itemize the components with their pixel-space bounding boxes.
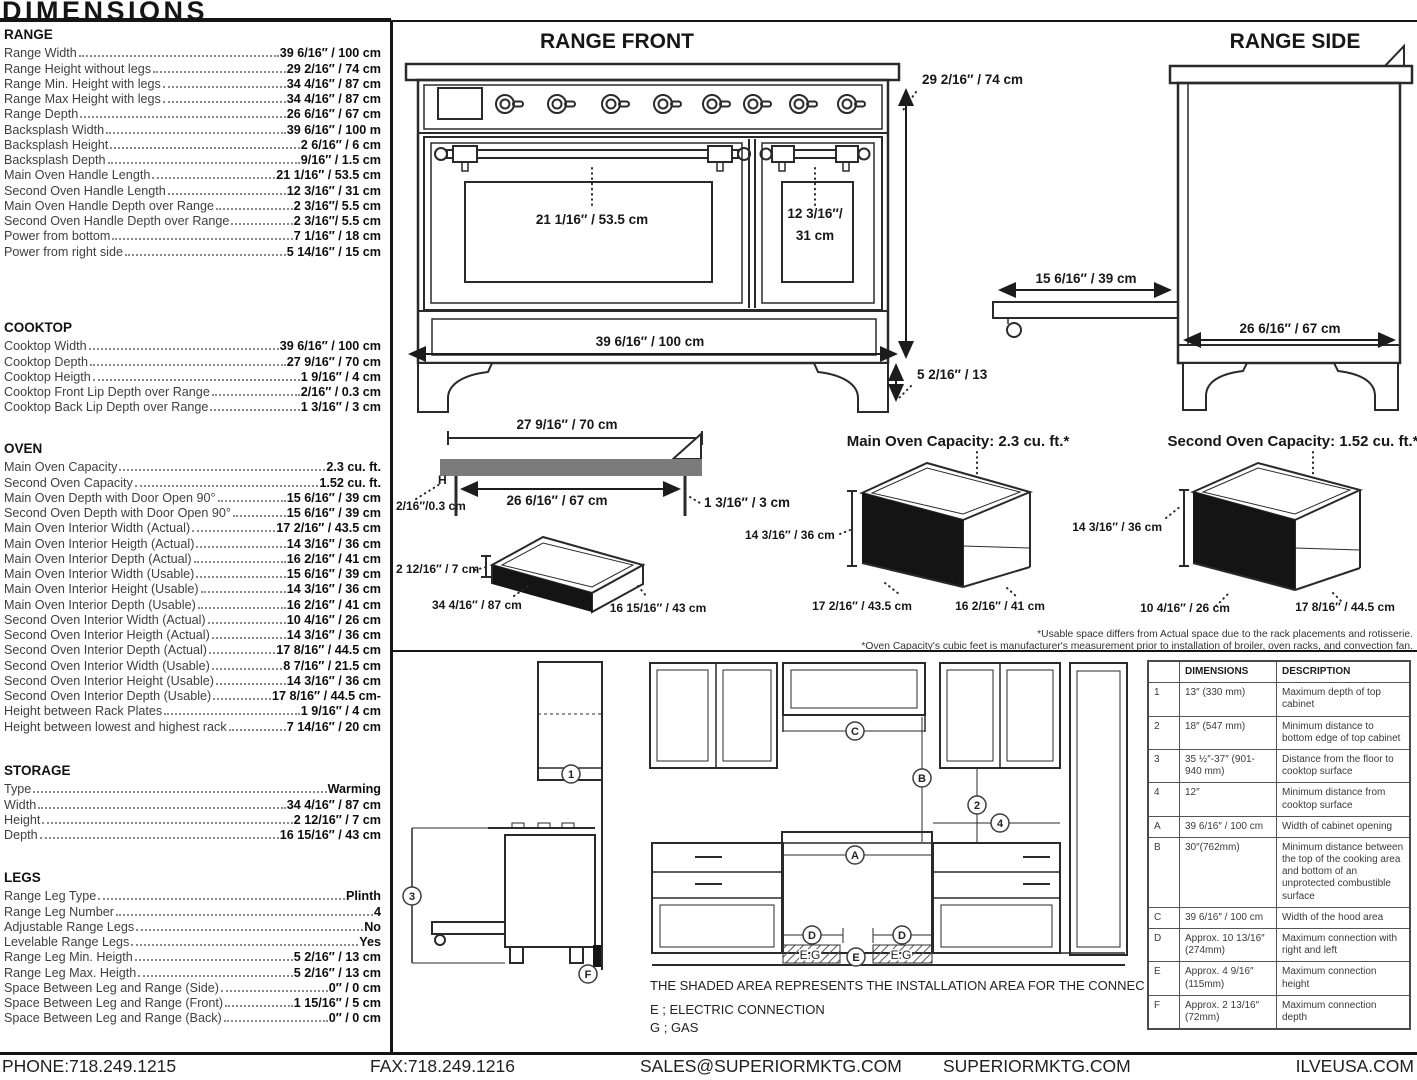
dotted-leader: [196, 546, 285, 548]
range-side-diagram: RANGE SIDE 15 6/16″ / 39 cm 26 6/16″ / 6…: [993, 30, 1412, 410]
spec-label: Main Oven Interior Depth (Actual): [4, 552, 192, 566]
spec-value: 2 3/16″/ 5.5 cm: [294, 214, 381, 228]
spec-label: Type: [4, 782, 31, 796]
spec-row: Second Oven Interior Depth (Actual) 17 8…: [4, 642, 381, 657]
dotted-leader: [152, 177, 275, 179]
spec-row: Range Leg Min. Heigth 5 2/16″ / 13 cm: [4, 949, 381, 964]
spec-value: 2 3/16″/ 5.5 cm: [294, 199, 381, 213]
spec-row: Range Depth 26 6/16″ / 67 cm: [4, 106, 381, 121]
connection-table: DIMENSIONS DESCRIPTION 1 13″ (330 mm) Ma…: [1147, 660, 1411, 1030]
svg-text:D: D: [808, 930, 816, 942]
spec-row: Height between Rack Plates 1 9/16″ / 4 c…: [4, 703, 381, 718]
row-description: Distance from the floor to cooktop surfa…: [1277, 749, 1411, 782]
main-oven-capacity-title: Main Oven Capacity: 2.3 cu. ft.*: [847, 433, 1070, 450]
spec-value: 2.3 cu. ft.: [326, 460, 381, 474]
row-dimension: Approx. 2 13/16″ (72mm): [1180, 995, 1277, 1029]
dotted-leader: [194, 561, 286, 563]
spec-row: Range Leg Type Plinth: [4, 888, 381, 903]
dotted-leader: [164, 713, 300, 715]
row-description: Width of the hood area: [1277, 907, 1411, 928]
leg-height-dim: 5 2/16″ / 13: [917, 367, 988, 382]
spec-label: Range Min. Height with legs: [4, 77, 161, 91]
spec-value: 17 2/16″ / 43.5 cm: [276, 521, 381, 535]
spec-row: Space Between Leg and Range (Front) 1 15…: [4, 995, 381, 1010]
wall-cabinet: [538, 662, 602, 780]
marker-f: F: [579, 965, 597, 983]
row-dimension: 13″ (330 mm): [1180, 683, 1277, 716]
spec-row: Backsplash Width 39 6/16″ / 100 m: [4, 121, 381, 136]
row-dimension: Approx. 10 13/16″ (274mm): [1180, 929, 1277, 962]
table-body: 1 13″ (330 mm) Maximum depth of top cabi…: [1148, 683, 1410, 1029]
spec-value: 0″ / 0 cm: [329, 981, 381, 995]
spec-label: Second Oven Interior Width (Usable): [4, 659, 210, 673]
section-title: COOKTOP: [4, 320, 381, 335]
spec-label: Second Oven Capacity: [4, 476, 133, 490]
spec-rows: Range Leg Type Plinth Range Leg Number 4…: [4, 888, 381, 1025]
row-id: D: [1148, 929, 1180, 962]
footnote-1: *Usable space differs from Actual space …: [1037, 629, 1413, 640]
spec-row: Main Oven Capacity 2.3 cu. ft.: [4, 459, 381, 474]
spec-label: Main Oven Handle Depth over Range: [4, 199, 214, 213]
page-title: DIMENSIONS: [2, 0, 208, 27]
row-description: Minimum distance from cooktop surface: [1277, 783, 1411, 816]
spec-label: Main Oven Interior Height (Usable): [4, 582, 199, 596]
spec-value: 39 6/16″ / 100 m: [287, 123, 381, 137]
installation-note: THE SHADED AREA REPRESENTS THE INSTALLAT…: [650, 978, 1145, 993]
spec-row: Adjustable Range Legs No: [4, 919, 381, 934]
spec-row: Cooktop Front Lip Depth over Range 2/16″…: [4, 384, 381, 399]
range-front-title: RANGE FRONT: [540, 30, 694, 53]
control-display: [438, 88, 482, 119]
dotted-leader: [192, 530, 275, 532]
dotted-leader: [218, 500, 286, 502]
svg-text:2: 2: [974, 800, 980, 812]
range-width-dim: 39 6/16″ / 100 cm: [596, 334, 705, 349]
dotted-leader: [221, 990, 328, 992]
second-handle-dim-b: 31 cm: [796, 228, 834, 243]
marker-b: B: [913, 769, 931, 787]
dotted-leader: [33, 791, 326, 793]
spec-section-oven: OVEN Main Oven Capacity 2.3 cu. ft. Seco…: [4, 441, 381, 734]
row-id: E: [1148, 962, 1180, 995]
marker-3: 3: [403, 887, 421, 905]
dotted-leader: [108, 162, 300, 164]
spec-row: Second Oven Interior Heigth (Actual) 14 …: [4, 627, 381, 642]
svg-text:F: F: [585, 969, 592, 981]
title-underline: [0, 18, 391, 22]
spec-row: Second Oven Interior Depth (Usable) 17 8…: [4, 688, 381, 703]
spec-row: Main Oven Interior Width (Actual) 17 2/1…: [4, 520, 381, 535]
spec-value: 4: [374, 905, 381, 919]
row-id: 2: [1148, 716, 1180, 749]
table-row: 3 35 ½″-37″ (901-940 mm) Distance from t…: [1148, 749, 1410, 782]
dotted-leader: [209, 652, 275, 654]
dotted-leader: [79, 55, 279, 57]
spec-label: Range Height without legs: [4, 62, 151, 76]
spec-label: Adjustable Range Legs: [4, 920, 134, 934]
spec-label: Second Oven Interior Depth (Usable): [4, 689, 211, 703]
spec-label: Range Max Height with legs: [4, 92, 161, 106]
dotted-leader: [196, 576, 285, 578]
spec-row: Space Between Leg and Range (Side) 0″ / …: [4, 980, 381, 995]
footer-phone: PHONE:718.249.1215: [2, 1056, 176, 1077]
spec-row: Power from right side 5 14/16″ / 15 cm: [4, 243, 381, 258]
dotted-leader: [212, 394, 300, 396]
spec-value: Plinth: [346, 889, 381, 903]
door-open-dim: 15 6/16″ / 39 cm: [1035, 271, 1136, 286]
installation-front-view: C B 2 4: [650, 663, 1127, 966]
backsplash: [1385, 46, 1404, 66]
dotted-leader: [93, 379, 300, 381]
main-oven-capacity-diagram: Main Oven Capacity: 2.3 cu. ft.* 14 3/16…: [745, 433, 1069, 613]
spec-label: Cooktop Heigth: [4, 370, 91, 384]
spec-label: Space Between Leg and Range (Side): [4, 981, 219, 995]
marker-e: E: [847, 948, 865, 966]
spec-value: 7 14/16″ / 20 cm: [287, 720, 381, 734]
dotted-leader: [168, 193, 286, 195]
second-oven-height-dim: 14 3/16″ / 36 cm: [1072, 520, 1162, 534]
spec-value: 34 4/16″ / 87 cm: [287, 77, 381, 91]
spec-row: Second Oven Handle Length 12 3/16″ / 31 …: [4, 182, 381, 197]
range-front-body: [418, 80, 888, 363]
tall-cabinet: [1070, 663, 1127, 955]
table-row: F Approx. 2 13/16″ (72mm) Maximum connec…: [1148, 995, 1410, 1029]
marker-c: C: [846, 722, 864, 740]
connection-zone: [593, 945, 601, 967]
spec-value: 14 3/16″ / 36 cm: [287, 628, 381, 642]
spec-label: Range Leg Type: [4, 889, 96, 903]
svg-text:D: D: [898, 930, 906, 942]
control-knobs: [496, 95, 865, 113]
marker-2: 2: [968, 796, 986, 814]
spec-label: Power from right side: [4, 245, 123, 259]
dotted-leader: [212, 637, 286, 639]
spec-label: Range Depth: [4, 107, 78, 121]
spec-row: Main Oven Interior Height (Usable) 14 3/…: [4, 581, 381, 596]
spec-value: 39 6/16″ / 100 cm: [280, 46, 381, 60]
main-oven-width-dim: 17 2/16″ / 43.5 cm: [812, 599, 912, 613]
dotted-leader: [201, 591, 286, 593]
dotted-leader: [89, 348, 279, 350]
row-description: Minimum distance to bottom edge of top c…: [1277, 716, 1411, 749]
dotted-leader: [112, 238, 292, 240]
spec-row: Cooktop Back Lip Depth over Range 1 3/16…: [4, 399, 381, 414]
row-id: 1: [1148, 683, 1180, 716]
spec-label: Second Oven Handle Depth over Range: [4, 214, 229, 228]
spec-row: Main Oven Depth with Door Open 90° 15 6/…: [4, 490, 381, 505]
marker-a: A: [846, 846, 864, 864]
spec-row: Type Warming: [4, 781, 381, 796]
spec-value: 1.52 cu. ft.: [319, 476, 381, 490]
spec-label: Range Leg Min. Heigth: [4, 950, 133, 964]
table-row: 2 18″ (547 mm) Minimum distance to botto…: [1148, 716, 1410, 749]
main-oven-depth-dim: 16 2/16″ / 41 cm: [955, 599, 1045, 613]
dotted-leader: [163, 86, 286, 88]
spec-row: Range Leg Number 4: [4, 903, 381, 918]
table-row: B 30″(762mm) Minimum distance between th…: [1148, 837, 1410, 907]
svg-text:E: E: [852, 952, 859, 964]
spec-value: 2 6/16″ / 6 cm: [301, 138, 381, 152]
dotted-leader: [208, 622, 286, 624]
spec-label: Main Oven Interior Width (Actual): [4, 521, 190, 535]
spec-row: Main Oven Interior Depth (Usable) 16 2/1…: [4, 596, 381, 611]
spec-label: Levelable Range Legs: [4, 935, 129, 949]
spec-label: Space Between Leg and Range (Front): [4, 996, 223, 1010]
drawer-width-dim: 34 4/16″ / 87 cm: [432, 598, 522, 612]
spec-label: Space Between Leg and Range (Back): [4, 1011, 222, 1025]
spec-value: 5 2/16″ / 13 cm: [294, 966, 381, 980]
spec-row: Second Oven Capacity 1.52 cu. ft.: [4, 474, 381, 489]
spec-label: Main Oven Interior Width (Usable): [4, 567, 194, 581]
spec-value: 16 15/16″ / 43 cm: [280, 828, 381, 842]
header-blank: [1148, 661, 1180, 683]
dotted-leader: [153, 71, 286, 73]
spec-row: Main Oven Interior Heigth (Actual) 14 3/…: [4, 535, 381, 550]
spec-row: Levelable Range Legs Yes: [4, 934, 381, 949]
footer-email: SALES@SUPERIORMKTG.COM: [640, 1056, 902, 1077]
footer-fax: FAX:718.249.1216: [370, 1056, 515, 1077]
second-oven-capacity-diagram: Second Oven Capacity: 1.52 cu. ft.* 14 3…: [1072, 433, 1417, 615]
spec-label: Width: [4, 798, 36, 812]
spec-section-storage: STORAGE Type Warming Width 34 4/16″ / 87…: [4, 763, 381, 842]
table-row: D Approx. 10 13/16″ (274mm) Maximum conn…: [1148, 929, 1410, 962]
cooktop-width-dim: 26 6/16″ / 67 cm: [506, 493, 607, 508]
spec-label: Main Oven Handle Length: [4, 168, 150, 182]
table-row: 1 13″ (330 mm) Maximum depth of top cabi…: [1148, 683, 1410, 716]
dotted-leader: [163, 101, 286, 103]
row-description: Maximum connection depth: [1277, 995, 1411, 1029]
row-description: Minimum distance between the top of the …: [1277, 837, 1411, 907]
spec-value: 10 4/16″ / 26 cm: [287, 613, 381, 627]
dotted-leader: [216, 208, 293, 210]
spec-row: Second Oven Interior Width (Usable) 8 7/…: [4, 657, 381, 672]
spec-label: Second Oven Depth with Door Open 90°: [4, 506, 231, 520]
spec-value: 5 14/16″ / 15 cm: [287, 245, 381, 259]
spec-row: Main Oven Interior Width (Usable) 15 6/1…: [4, 566, 381, 581]
spec-value: 29 2/16″ / 74 cm: [287, 62, 381, 76]
cooktop-bar: [440, 459, 702, 476]
hood-cabinet: [783, 663, 925, 715]
spec-value: 15 6/16″ / 39 cm: [287, 567, 381, 581]
dotted-leader: [131, 944, 358, 946]
spec-row: Height 2 12/16″ / 7 cm: [4, 812, 381, 827]
spec-value: 34 4/16″ / 87 cm: [287, 92, 381, 106]
spec-row: Range Height without legs 29 2/16″ / 74 …: [4, 60, 381, 75]
spec-label: Main Oven Interior Heigth (Actual): [4, 537, 194, 551]
spec-label: Second Oven Interior Depth (Actual): [4, 643, 207, 657]
svg-text:A: A: [851, 850, 859, 862]
cooktop-depth-dim: 27 9/16″ / 70 cm: [516, 417, 617, 432]
spec-value: 15 6/16″ / 39 cm: [287, 491, 381, 505]
marker-d-right: D: [893, 926, 911, 944]
row-description: Maximum depth of top cabinet: [1277, 683, 1411, 716]
spec-value: 17 8/16″ / 44.5 cm-: [272, 689, 381, 703]
dotted-leader: [38, 807, 286, 809]
top-diagrams: RANGE FRONT: [390, 20, 1417, 652]
svg-text:4: 4: [997, 818, 1004, 830]
front-right-foot: [814, 363, 888, 412]
spec-row: Second Oven Interior Height (Usable) 14 …: [4, 673, 381, 688]
table-row: 4 12″ Minimum distance from cooktop surf…: [1148, 783, 1410, 816]
spec-label: Main Oven Capacity: [4, 460, 117, 474]
spec-section-cooktop: COOKTOP Cooktop Width 39 6/16″ / 100 cm …: [4, 320, 381, 414]
spec-label: Second Oven Interior Width (Actual): [4, 613, 206, 627]
spec-value: 5 2/16″ / 13 cm: [294, 950, 381, 964]
row-id: 4: [1148, 783, 1180, 816]
spec-section-range: RANGE Range Width 39 6/16″ / 100 cm Rang…: [4, 27, 381, 259]
spec-label: Range Leg Max. Heigth: [4, 966, 136, 980]
spec-label: Range Leg Number: [4, 905, 114, 919]
spec-label: Cooktop Width: [4, 339, 87, 353]
dotted-leader: [210, 409, 299, 411]
spec-value: 0″ / 0 cm: [329, 1011, 381, 1025]
row-dimension: 30″(762mm): [1180, 837, 1277, 907]
dotted-leader: [135, 959, 293, 961]
svg-text:1: 1: [568, 769, 574, 781]
spec-label: Main Oven Depth with Door Open 90°: [4, 491, 216, 505]
spec-value: 14 3/16″ / 36 cm: [287, 674, 381, 688]
dotted-leader: [135, 485, 319, 487]
spec-value: 1 9/16″ / 4 cm: [301, 704, 381, 718]
marker-4: 4: [991, 814, 1009, 832]
row-id: B: [1148, 837, 1180, 907]
spec-label: Height between lowest and highest rack: [4, 720, 227, 734]
dotted-leader: [213, 698, 271, 700]
spec-row: Second Oven Interior Width (Actual) 10 4…: [4, 612, 381, 627]
main-oven-height-dim: 14 3/16″ / 36 cm: [745, 528, 835, 542]
section-title: LEGS: [4, 870, 381, 885]
dotted-leader: [229, 729, 286, 731]
spec-label: Cooktop Back Lip Depth over Range: [4, 400, 208, 414]
spec-value: 16 2/16″ / 41 cm: [287, 598, 381, 612]
table-header-row: DIMENSIONS DESCRIPTION: [1148, 661, 1410, 683]
spec-value: No: [364, 920, 381, 934]
side-top-bar: [1170, 66, 1412, 83]
spec-row: Main Oven Handle Length 21 1/16″ / 53.5 …: [4, 167, 381, 182]
row-description: Maximum connection with right and left: [1277, 929, 1411, 962]
storage-drawer-diagram: 2 12/16″ / 7 cm 34 4/16″ / 87 cm 16 15/1…: [396, 537, 706, 615]
range-side-title: RANGE SIDE: [1230, 30, 1361, 53]
second-oven-width-dim: 10 4/16″ / 26 cm: [1140, 601, 1230, 615]
spec-rows: Type Warming Width 34 4/16″ / 87 cm Heig…: [4, 781, 381, 842]
marker-1: 1: [562, 765, 580, 783]
spec-value: 16 2/16″ / 41 cm: [287, 552, 381, 566]
spec-value: Warming: [328, 782, 381, 796]
spec-label: Height between Rack Plates: [4, 704, 162, 718]
spec-rows: Cooktop Width 39 6/16″ / 100 cm Cooktop …: [4, 338, 381, 414]
spec-row: Cooktop Width 39 6/16″ / 100 cm: [4, 338, 381, 353]
spec-label: Power from bottom: [4, 229, 110, 243]
side-right-foot: [1334, 363, 1398, 410]
dotted-leader: [138, 975, 292, 977]
header-dimensions: DIMENSIONS: [1180, 661, 1277, 683]
front-lip-dim: 2/16″/0.3 cm: [396, 499, 466, 513]
spec-label: Cooktop Front Lip Depth over Range: [4, 385, 210, 399]
row-dimension: 39 6/16″ / 100 cm: [1180, 907, 1277, 928]
spec-label: Backsplash Depth: [4, 153, 106, 167]
dotted-leader: [116, 914, 373, 916]
spec-value: 14 3/16″ / 36 cm: [287, 582, 381, 596]
spec-row: Main Oven Handle Depth over Range 2 3/16…: [4, 198, 381, 213]
row-id: 3: [1148, 749, 1180, 782]
legend-electric: E ; ELECTRIC CONNECTION: [650, 1002, 825, 1017]
dotted-leader: [224, 1020, 328, 1022]
dotted-leader: [233, 515, 286, 517]
spec-value: 1 3/16″ / 3 cm: [301, 400, 381, 414]
dotted-leader: [98, 898, 345, 900]
dotted-leader: [198, 607, 286, 609]
svg-text:B: B: [918, 773, 926, 785]
spec-row: Power from bottom 7 1/16″ / 18 cm: [4, 228, 381, 243]
marker-d-left: D: [803, 926, 821, 944]
section-title: STORAGE: [4, 763, 381, 778]
spec-label: Depth: [4, 828, 38, 842]
dotted-leader: [231, 223, 292, 225]
footer-ilve-site: ILVEUSA.COM: [1296, 1056, 1414, 1077]
spec-value: 15 6/16″ / 39 cm: [287, 506, 381, 520]
spec-label: Range Width: [4, 46, 77, 60]
dotted-leader: [40, 837, 279, 839]
spec-value: 2/16″ / 0.3 cm: [301, 385, 381, 399]
row-dimension: 18″ (547 mm): [1180, 716, 1277, 749]
upper-left-cabinet: [650, 663, 777, 768]
eg-label-left: E.G: [800, 948, 821, 962]
spec-row: Range Leg Max. Heigth 5 2/16″ / 13 cm: [4, 964, 381, 979]
eg-label-right: E.G: [891, 948, 912, 962]
spec-label: Cooktop Depth: [4, 355, 88, 369]
spec-row: Space Between Leg and Range (Back) 0″ / …: [4, 1010, 381, 1025]
second-handle-dim-a: 12 3/16″/: [787, 206, 843, 221]
spec-value: 27 9/16″ / 70 cm: [287, 355, 381, 369]
row-id: A: [1148, 816, 1180, 837]
dotted-leader: [80, 116, 286, 118]
spec-value: Yes: [359, 935, 381, 949]
spec-value: 17 8/16″ / 44.5 cm: [276, 643, 381, 657]
dotted-leader: [110, 147, 299, 149]
open-door-shelf: [993, 302, 1178, 318]
row-dimension: 12″: [1180, 783, 1277, 816]
spec-row: Cooktop Heigth 1 9/16″ / 4 cm: [4, 369, 381, 384]
open-door-profile: [432, 922, 505, 934]
spec-row: Range Max Height with legs 34 4/16″ / 87…: [4, 91, 381, 106]
spec-row: Backsplash Height 2 6/16″ / 6 cm: [4, 137, 381, 152]
dotted-leader: [212, 668, 282, 670]
spec-label: Height: [4, 813, 40, 827]
row-description: Maximum connection height: [1277, 962, 1411, 995]
dotted-leader: [42, 822, 292, 824]
table-row: E Approx. 4 9/16″ (115mm) Maximum connec…: [1148, 962, 1410, 995]
range-side-profile: [505, 835, 595, 947]
row-dimension: Approx. 4 9/16″ (115mm): [1180, 962, 1277, 995]
row-dimension: 39 6/16″ / 100 cm: [1180, 816, 1277, 837]
spec-row: Second Oven Handle Depth over Range 2 3/…: [4, 213, 381, 228]
dotted-leader: [136, 929, 363, 931]
second-oven-capacity-title: Second Oven Capacity: 1.52 cu. ft.*: [1168, 433, 1417, 450]
spec-row: Cooktop Depth 27 9/16″ / 70 cm: [4, 353, 381, 368]
spec-value: 7 1/16″ / 18 cm: [294, 229, 381, 243]
main-oven-glass: [465, 182, 712, 282]
spec-label: Main Oven Interior Depth (Usable): [4, 598, 196, 612]
svg-text:3: 3: [409, 891, 415, 903]
spec-row: Depth 16 15/16″ / 43 cm: [4, 827, 381, 842]
table-row: C 39 6/16″ / 100 cm Width of the hood ar…: [1148, 907, 1410, 928]
range-front-top-bar: [406, 64, 899, 80]
dimensions-spec-sheet: DIMENSIONS RANGE Range Width 39 6/16″ / …: [0, 0, 1417, 1080]
spec-label: Second Oven Handle Length: [4, 184, 166, 198]
spec-label: Backsplash Height: [4, 138, 108, 152]
spec-row: Second Oven Depth with Door Open 90° 15 …: [4, 505, 381, 520]
spec-value: 1 9/16″ / 4 cm: [301, 370, 381, 384]
